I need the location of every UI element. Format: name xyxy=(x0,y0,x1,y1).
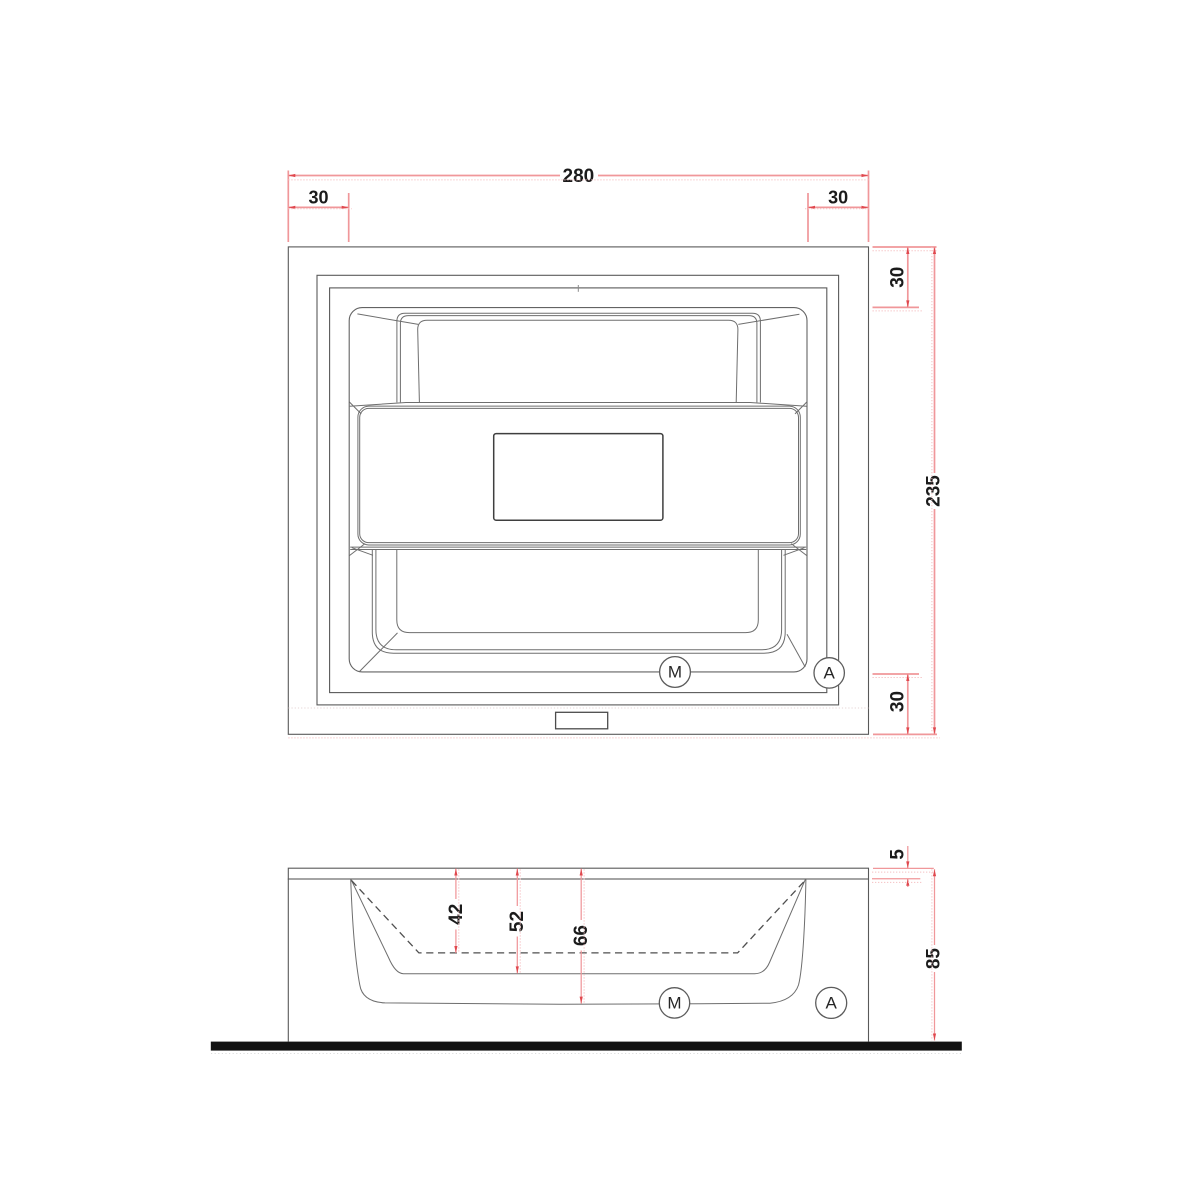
svg-text:235: 235 xyxy=(924,475,945,507)
svg-text:280: 280 xyxy=(563,166,595,187)
svg-text:52: 52 xyxy=(507,911,528,932)
svg-text:30: 30 xyxy=(308,187,328,207)
svg-text:M: M xyxy=(667,993,681,1012)
svg-text:M: M xyxy=(668,663,682,682)
svg-text:5: 5 xyxy=(888,849,909,860)
svg-text:66: 66 xyxy=(571,925,592,946)
svg-text:30: 30 xyxy=(828,187,848,207)
svg-text:85: 85 xyxy=(924,948,945,970)
svg-text:30: 30 xyxy=(888,267,909,288)
svg-text:A: A xyxy=(824,663,836,682)
svg-text:A: A xyxy=(826,994,838,1013)
svg-text:42: 42 xyxy=(446,904,467,925)
svg-text:30: 30 xyxy=(888,691,909,712)
